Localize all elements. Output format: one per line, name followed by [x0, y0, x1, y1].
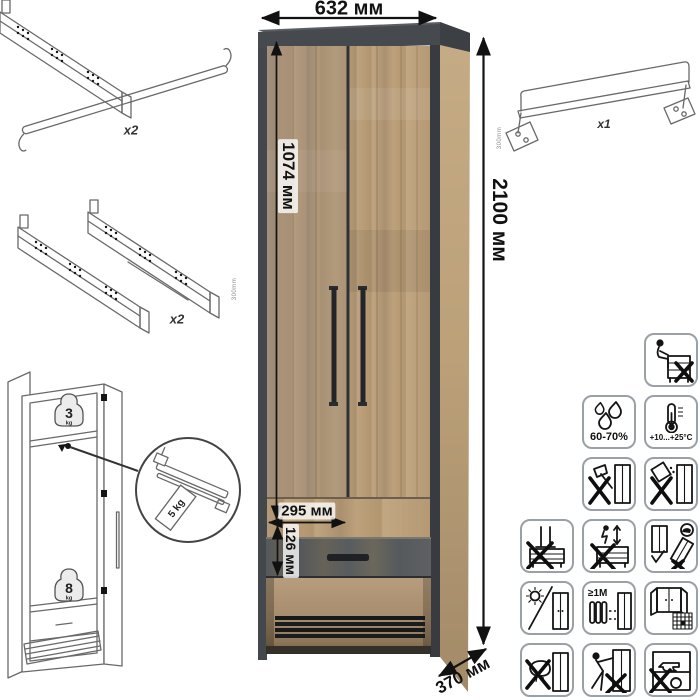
slides-length-label: 300mm	[232, 278, 238, 301]
diagram-artwork: 3 kg 8 kg 5 kg	[0, 0, 700, 700]
svg-text:8: 8	[65, 580, 73, 596]
width-dimension-label: 632 мм	[315, 0, 384, 21]
door-gap	[347, 46, 350, 498]
rail-qty-label: x1	[597, 117, 610, 131]
slides-qty-label: x2	[170, 312, 184, 327]
drawer-width-label: 295 мм	[278, 503, 335, 520]
svg-text:kg: kg	[66, 596, 72, 602]
drawer-height-label: 126 мм	[283, 524, 299, 578]
open-niche	[266, 578, 431, 652]
interior-load-diagram: 3 kg 8 kg 5 kg	[8, 372, 240, 678]
left-door	[267, 46, 348, 498]
drawer-handle	[327, 554, 369, 561]
carcass	[22, 384, 104, 672]
product-sheet: 3 kg 8 kg 5 kg	[0, 0, 700, 700]
handles-qty-label: x2	[124, 123, 138, 138]
wardrobe-side-panel	[440, 22, 470, 692]
door-height-label: 1074 мм	[278, 139, 298, 213]
height-dimension-label: 2100 мм	[487, 178, 511, 262]
hanger-rail-drawing	[506, 62, 695, 151]
svg-text:kg: kg	[66, 421, 72, 427]
drawer-slides-drawing	[0, 0, 219, 333]
svg-text:3: 3	[65, 405, 73, 421]
rail-length-label: 300mm	[497, 127, 503, 150]
wardrobe-render	[258, 22, 470, 692]
